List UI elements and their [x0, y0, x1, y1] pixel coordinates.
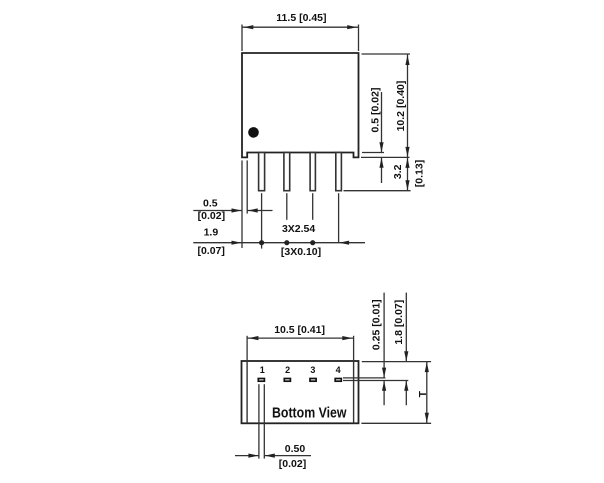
svg-text:3X2.54: 3X2.54 [282, 223, 315, 235]
svg-text:0.25 [0.01]: 0.25 [0.01] [370, 299, 382, 350]
svg-text:3.2: 3.2 [392, 164, 404, 179]
svg-text:1.8 [0.07]: 1.8 [0.07] [393, 300, 405, 345]
svg-text:1: 1 [260, 365, 265, 375]
svg-text:T: T [417, 390, 429, 397]
svg-text:4: 4 [336, 365, 341, 375]
svg-text:[3X0.10]: [3X0.10] [281, 246, 321, 258]
svg-text:[0.07]: [0.07] [197, 245, 224, 257]
svg-text:11.5 [0.45]: 11.5 [0.45] [276, 12, 326, 24]
svg-text:0.5: 0.5 [203, 197, 218, 209]
svg-text:10.5 [0.41]: 10.5 [0.41] [274, 324, 325, 336]
svg-text:2: 2 [285, 365, 290, 375]
svg-text:1.9: 1.9 [204, 226, 219, 238]
svg-text:0.50: 0.50 [285, 443, 306, 455]
svg-text:[0.02]: [0.02] [198, 210, 225, 222]
svg-text:0.5 [0.02]: 0.5 [0.02] [370, 88, 382, 133]
svg-text:3: 3 [310, 365, 315, 375]
svg-text:[0.13]: [0.13] [413, 160, 425, 187]
svg-text:10.2 [0.40]: 10.2 [0.40] [395, 81, 407, 132]
svg-text:[0.02]: [0.02] [279, 458, 306, 470]
svg-text:Bottom View: Bottom View [272, 405, 347, 421]
